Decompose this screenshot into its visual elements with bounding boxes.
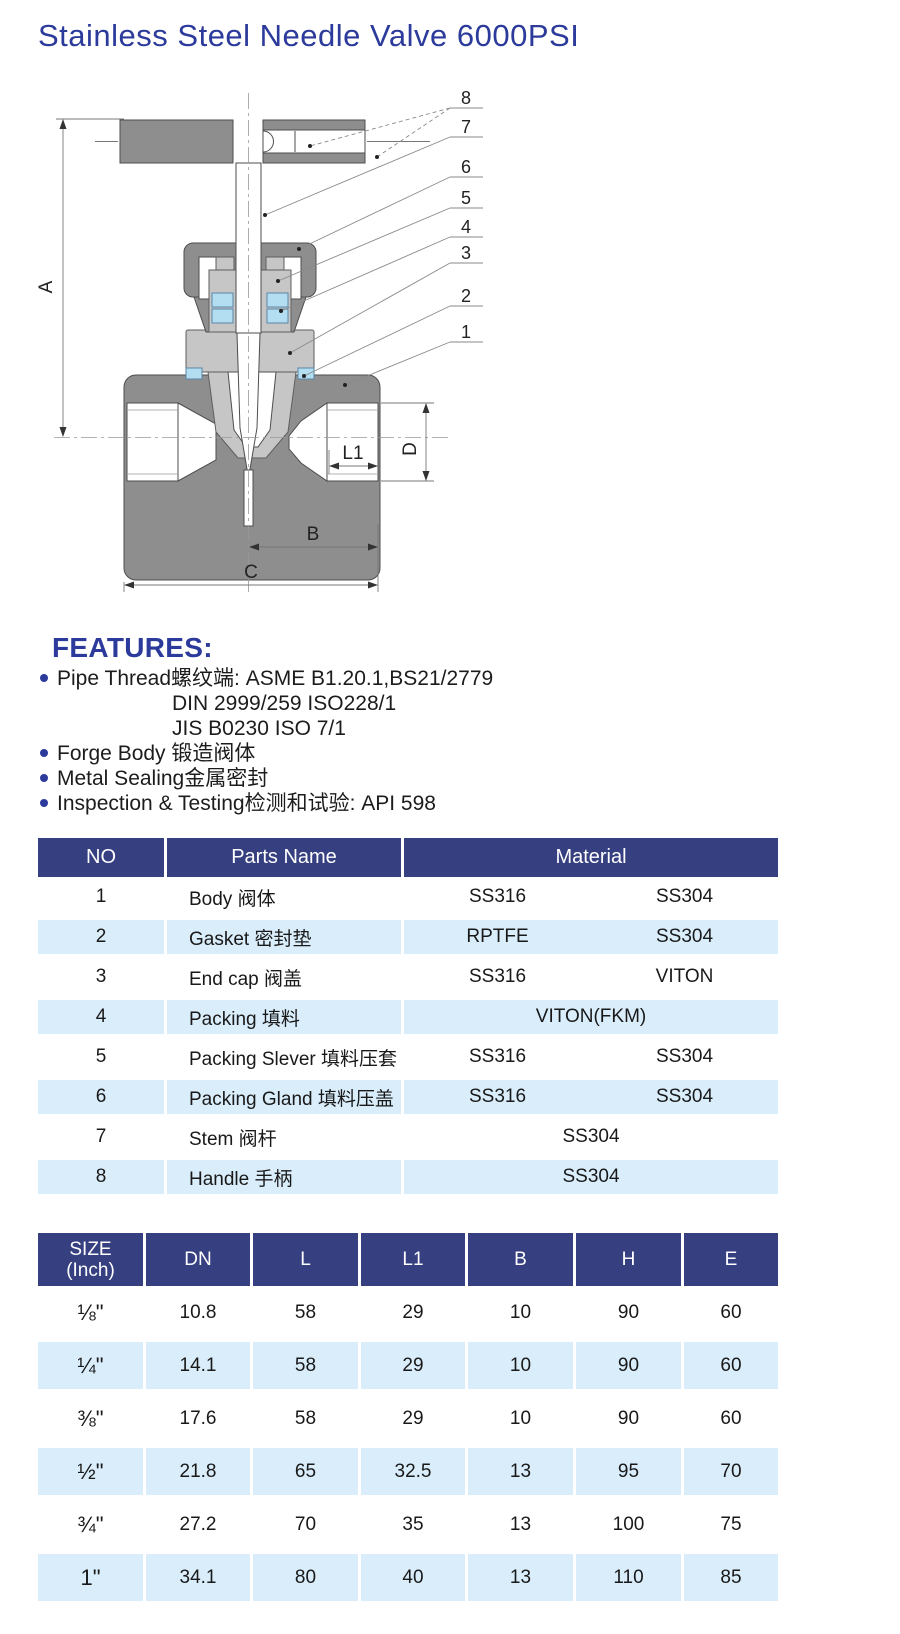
feature-text: Pipe Thread螺纹端: ASME B1.20.1,BS21/2779	[57, 666, 757, 691]
datasheet-page: Stainless Steel Needle Valve 6000PSI	[0, 0, 900, 1634]
cell: 29	[361, 1286, 468, 1339]
col-header-e: E	[684, 1233, 778, 1286]
cell: 70	[684, 1445, 778, 1498]
callout-8: 8	[461, 88, 471, 108]
feature-item: Inspection & Testing检测和试验: API 598	[57, 791, 757, 816]
cell: 95	[576, 1445, 684, 1498]
cell: 60	[684, 1392, 778, 1445]
cell: 10	[468, 1392, 576, 1445]
cell: 10	[468, 1339, 576, 1392]
valve-section-diagram: A D L1 B	[38, 85, 490, 597]
cell: 75	[684, 1498, 778, 1551]
cell: 8	[38, 1157, 167, 1197]
cell: ⅛"	[38, 1286, 146, 1339]
dim-label-c: C	[244, 562, 258, 583]
cell: 90	[576, 1339, 684, 1392]
table-row: 6 Packing Gland 填料压盖 SS316 SS304	[38, 1077, 778, 1117]
col-header-parts-name: Parts Name	[167, 838, 404, 877]
dim-label-a: A	[38, 280, 57, 293]
col-header-b: B	[468, 1233, 576, 1286]
callout-6: 6	[461, 157, 471, 177]
cell: 4	[38, 997, 167, 1037]
callout-1: 1	[461, 322, 471, 342]
col-header-size-line2: (Inch)	[39, 1260, 142, 1281]
dim-label-b: B	[307, 524, 320, 545]
cell: Packing Slever 填料压套	[167, 1037, 404, 1077]
cell: ¾"	[38, 1498, 146, 1551]
cell: End cap 阀盖	[167, 957, 404, 997]
col-header-l: L	[253, 1233, 361, 1286]
cell: SS316	[404, 877, 591, 917]
cell: 90	[576, 1286, 684, 1339]
col-header-h: H	[576, 1233, 684, 1286]
cell: 10	[468, 1286, 576, 1339]
cell: 5	[38, 1037, 167, 1077]
feature-sub-line: DIN 2999/259 ISO228/1	[172, 691, 757, 716]
cell: SS304	[591, 917, 778, 957]
page-title: Stainless Steel Needle Valve 6000PSI	[38, 18, 579, 54]
feature-text: Forge Body 锻造阀体	[57, 741, 757, 766]
cell: 13	[468, 1551, 576, 1604]
cell: 70	[253, 1498, 361, 1551]
table-header-row: NO Parts Name Material	[38, 838, 778, 877]
cell: Stem 阀杆	[167, 1117, 404, 1157]
table-row: 1" 34.1 80 40 13 110 85	[38, 1551, 778, 1604]
cell: 2	[38, 917, 167, 957]
table-header-row: SIZE (Inch) DN L L1 B H E	[38, 1233, 778, 1286]
cell: ¼"	[38, 1339, 146, 1392]
col-header-material: Material	[404, 838, 778, 877]
cell: 14.1	[146, 1339, 253, 1392]
cell: 34.1	[146, 1551, 253, 1604]
callout-7: 7	[461, 117, 471, 137]
cell: 90	[576, 1392, 684, 1445]
dimension-a: A	[38, 119, 124, 437]
cell: Handle 手柄	[167, 1157, 404, 1197]
cell: 32.5	[361, 1445, 468, 1498]
cell: Packing 填料	[167, 997, 404, 1037]
cell: SS316	[404, 1037, 591, 1077]
cell: 3	[38, 957, 167, 997]
table-row: 5 Packing Slever 填料压套 SS316 SS304	[38, 1037, 778, 1077]
cell: SS316	[404, 1077, 591, 1117]
callout-5: 5	[461, 188, 471, 208]
cell: 27.2	[146, 1498, 253, 1551]
cell: Packing Gland 填料压盖	[167, 1077, 404, 1117]
table-row: 2 Gasket 密封垫 RPTFE SS304	[38, 917, 778, 957]
cell: Gasket 密封垫	[167, 917, 404, 957]
feature-item: Pipe Thread螺纹端: ASME B1.20.1,BS21/2779 D…	[57, 666, 757, 741]
cell: 35	[361, 1498, 468, 1551]
cell: 29	[361, 1392, 468, 1445]
cell: 85	[684, 1551, 778, 1604]
table-row: ⅛" 10.8 58 29 10 90 60	[38, 1286, 778, 1339]
cell: 6	[38, 1077, 167, 1117]
cell: 1	[38, 877, 167, 917]
cell: 17.6	[146, 1392, 253, 1445]
table-row: 3 End cap 阀盖 SS316 VITON	[38, 957, 778, 997]
cell: SS304	[404, 1117, 778, 1157]
cell: SS304	[591, 1077, 778, 1117]
callout-4: 4	[461, 217, 471, 237]
cell: 60	[684, 1339, 778, 1392]
table-row: ¾" 27.2 70 35 13 100 75	[38, 1498, 778, 1551]
col-header-size-line1: SIZE	[39, 1239, 142, 1260]
cell: 58	[253, 1339, 361, 1392]
col-header-l1: L1	[361, 1233, 468, 1286]
col-header-dn: DN	[146, 1233, 253, 1286]
table-row: 4 Packing 填料 VITON(FKM)	[38, 997, 778, 1037]
features-heading: FEATURES:	[52, 632, 213, 664]
cell: 7	[38, 1117, 167, 1157]
cell: 13	[468, 1498, 576, 1551]
cell: 100	[576, 1498, 684, 1551]
cell: SS304	[591, 1037, 778, 1077]
cell: 1"	[38, 1551, 146, 1604]
dim-label-l1: L1	[342, 443, 363, 464]
callout-2: 2	[461, 286, 471, 306]
cell: SS304	[404, 1157, 778, 1197]
cell: 29	[361, 1339, 468, 1392]
table-row: 1 Body 阀体 SS316 SS304	[38, 877, 778, 917]
table-row: 8 Handle 手柄 SS304	[38, 1157, 778, 1197]
size-dimension-table: SIZE (Inch) DN L L1 B H E ⅛" 10.8 58 29 …	[38, 1233, 778, 1604]
feature-text: Inspection & Testing检测和试验: API 598	[57, 791, 757, 816]
cell: ½"	[38, 1445, 146, 1498]
cell: 13	[468, 1445, 576, 1498]
cell: 60	[684, 1286, 778, 1339]
cell: 58	[253, 1392, 361, 1445]
cell: 110	[576, 1551, 684, 1604]
cell: SS304	[591, 877, 778, 917]
col-header-no: NO	[38, 838, 167, 877]
parts-material-table: NO Parts Name Material 1 Body 阀体 SS316 S…	[38, 838, 778, 1197]
cell: 80	[253, 1551, 361, 1604]
features-list: Pipe Thread螺纹端: ASME B1.20.1,BS21/2779 D…	[57, 666, 757, 816]
callout-3: 3	[461, 243, 471, 263]
col-header-size: SIZE (Inch)	[38, 1233, 146, 1286]
feature-item: Forge Body 锻造阀体	[57, 741, 757, 766]
table-row: ⅜" 17.6 58 29 10 90 60	[38, 1392, 778, 1445]
cell: Body 阀体	[167, 877, 404, 917]
dimension-d: D	[381, 403, 434, 481]
table-row: ¼" 14.1 58 29 10 90 60	[38, 1339, 778, 1392]
cell: 65	[253, 1445, 361, 1498]
cell: 40	[361, 1551, 468, 1604]
table-row: 7 Stem 阀杆 SS304	[38, 1117, 778, 1157]
cell: ⅜"	[38, 1392, 146, 1445]
cell: 58	[253, 1286, 361, 1339]
cell: SS316	[404, 957, 591, 997]
cell: 10.8	[146, 1286, 253, 1339]
feature-item: Metal Sealing金属密封	[57, 766, 757, 791]
cell: 21.8	[146, 1445, 253, 1498]
feature-text: Metal Sealing金属密封	[57, 766, 757, 791]
dim-label-d: D	[400, 442, 421, 456]
table-row: ½" 21.8 65 32.5 13 95 70	[38, 1445, 778, 1498]
cell: VITON	[591, 957, 778, 997]
cell: RPTFE	[404, 917, 591, 957]
cell: VITON(FKM)	[404, 997, 778, 1037]
feature-sub-line: JIS B0230 ISO 7/1	[172, 716, 757, 741]
